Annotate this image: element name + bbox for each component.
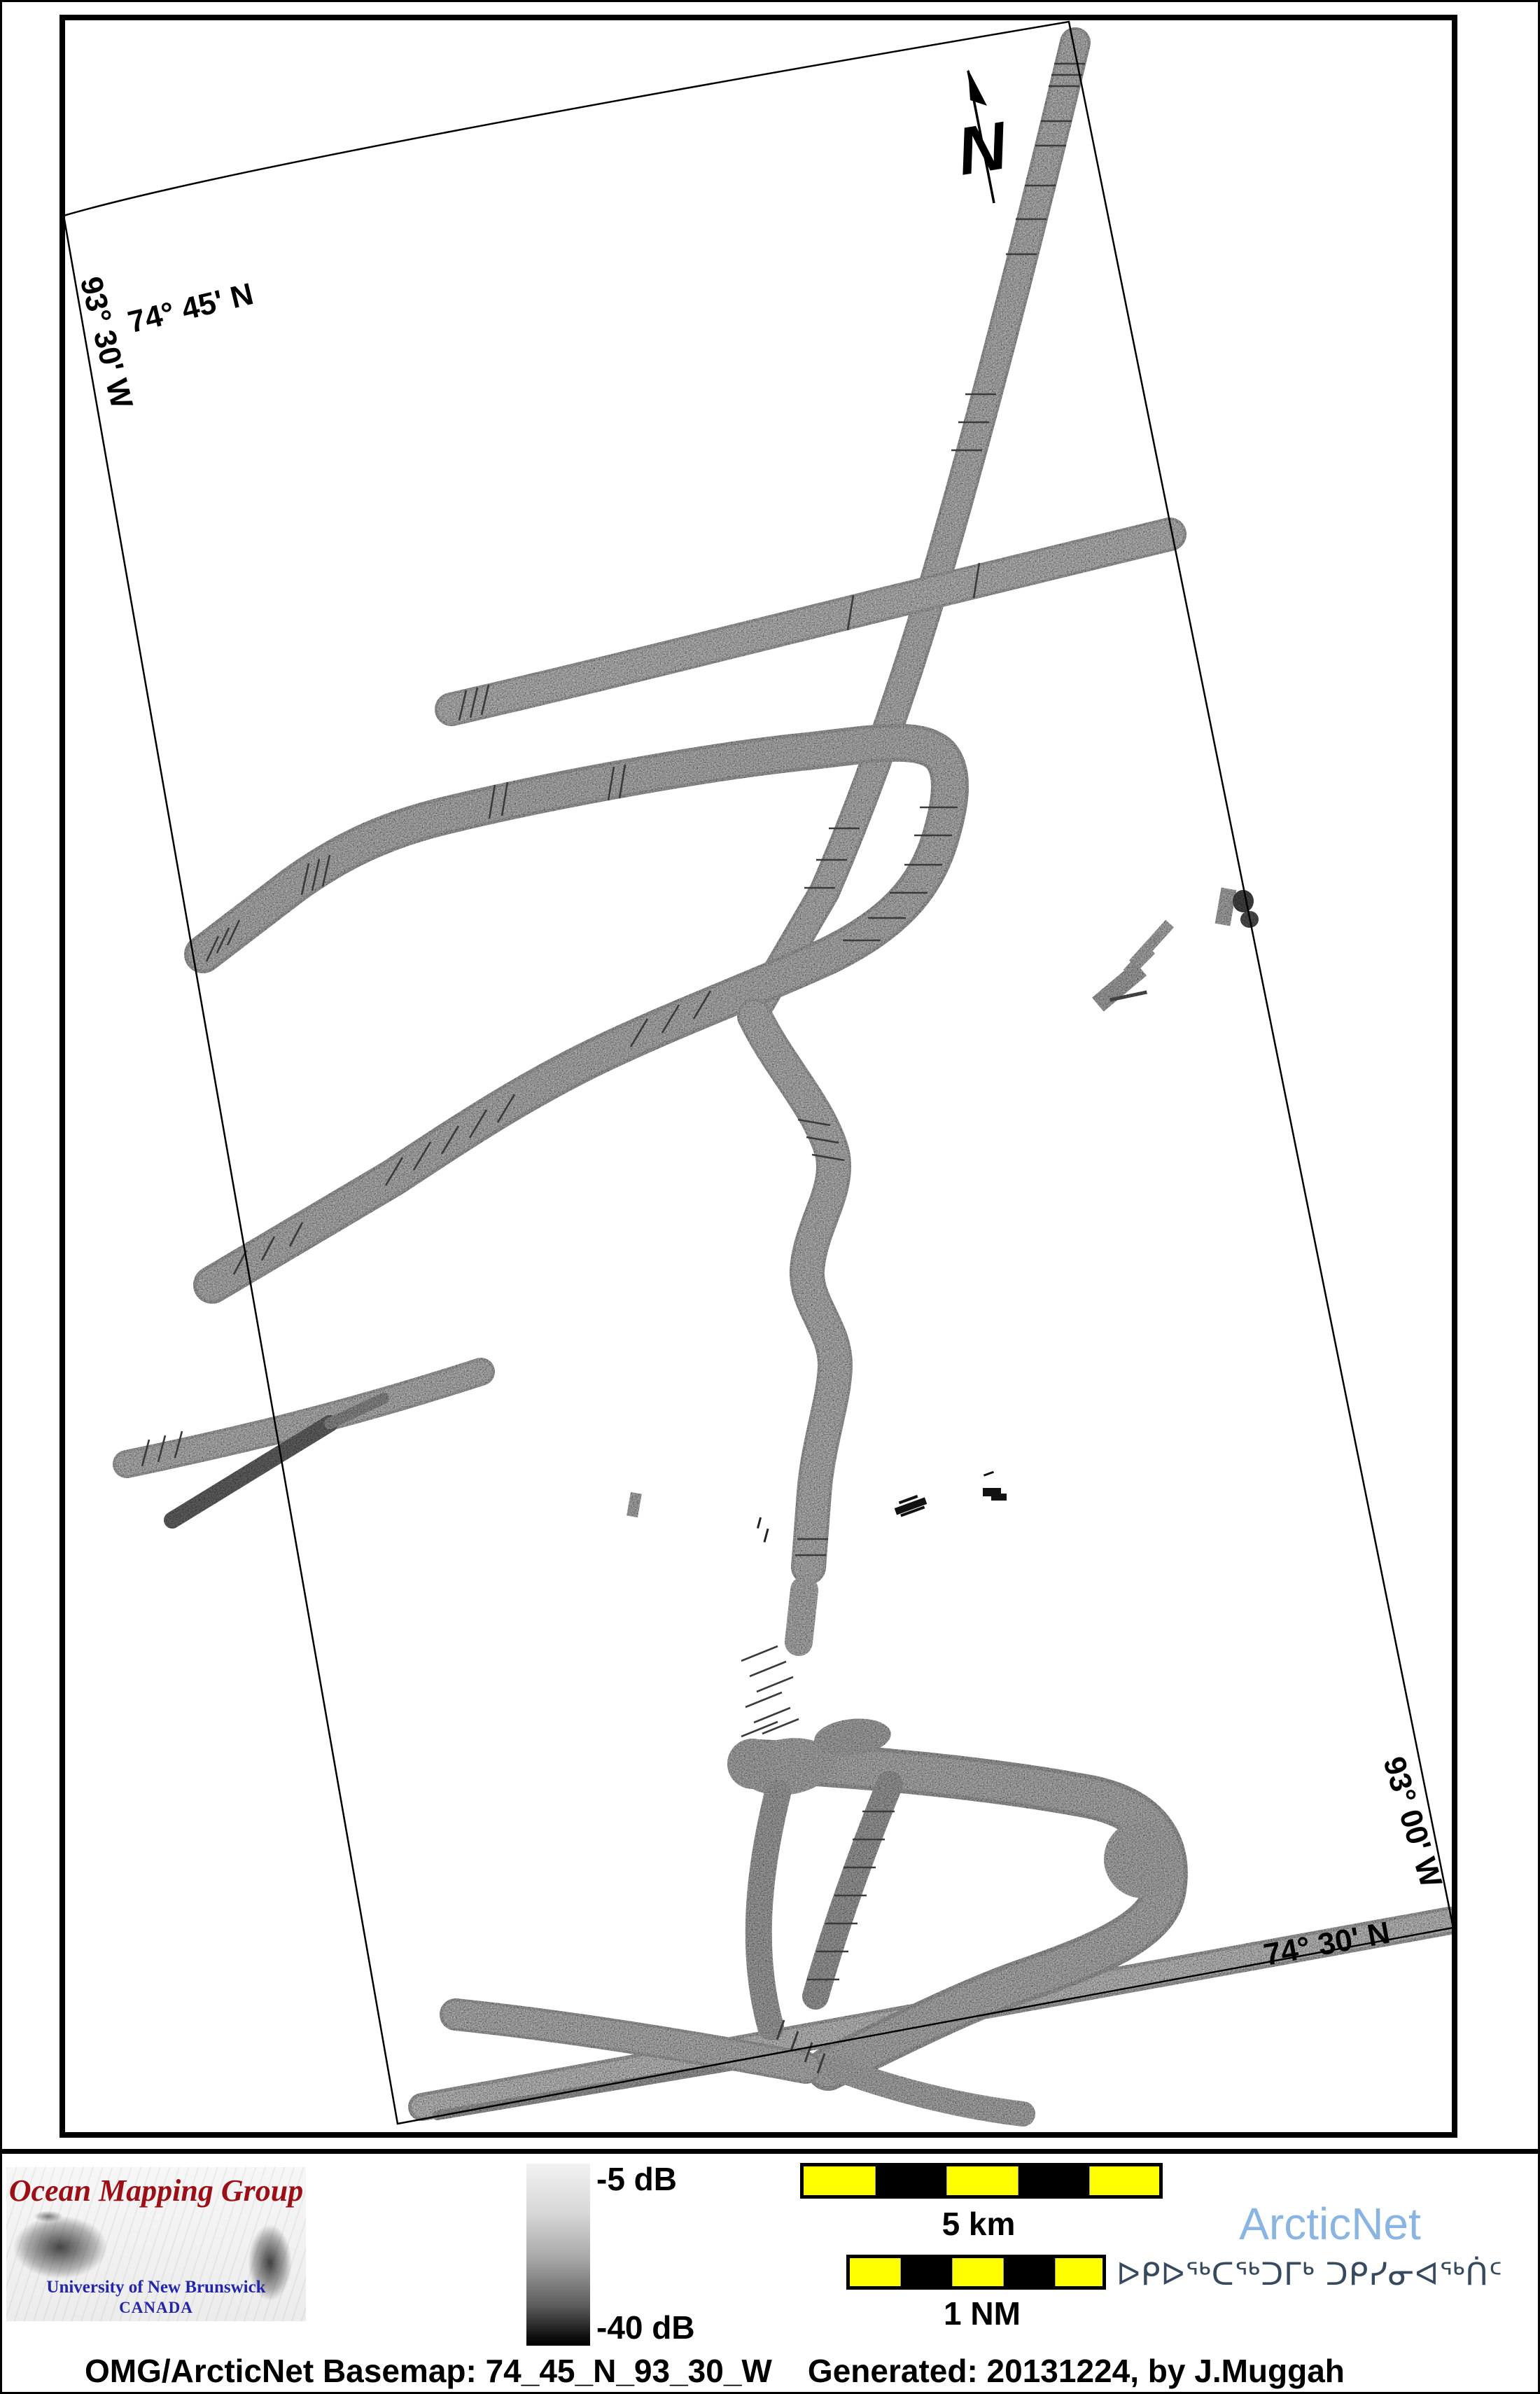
graticule-boundary — [64, 22, 1453, 2124]
sonar-swath-tracks — [127, 43, 1450, 2115]
north-arrow-icon: N — [952, 69, 1013, 203]
scale-bar-5km — [800, 2163, 1163, 2199]
swath-loop-left-limb — [815, 1784, 890, 1996]
arcticnet-inuktitut-name: ᐅᑭᐅᖅᑕᖅᑐᒥᒃ ᑐᑭᓯᓂᐊᖅᑏᑦ — [1116, 2257, 1445, 2292]
scale-bar-1nm-label: 1 NM — [898, 2295, 1066, 2332]
legend-separator — [2, 2149, 1540, 2154]
colorbar-min-label: -40 dB — [596, 2309, 695, 2346]
scale-bar-5km-label: 5 km — [895, 2205, 1063, 2243]
basemap-page: N 74° 45' N 93° 30' W 93° 00' W 74° 30' … — [0, 0, 1540, 2394]
label-longitude-right: 93° 00' W — [1376, 1753, 1448, 1891]
omg-logo-country: CANADA — [6, 2299, 306, 2317]
label-latitude-bottom: 74° 30' N — [1261, 1915, 1392, 1972]
scale-segment — [900, 2258, 952, 2286]
scale-segment — [1018, 2166, 1089, 2195]
scale-segment — [875, 2166, 946, 2195]
label-longitude-left: 93° 30' W — [73, 273, 139, 412]
scale-segment — [1055, 2258, 1102, 2286]
backscatter-colorbar — [526, 2164, 590, 2346]
scale-segment — [804, 2166, 875, 2195]
scale-segment — [850, 2258, 900, 2286]
colorbar-max-label: -5 dB — [596, 2160, 677, 2198]
omg-logo: Ocean Mapping Group University of New Br… — [6, 2167, 306, 2321]
omg-logo-institution: University of New Brunswick — [6, 2278, 306, 2297]
omg-logo-title: Ocean Mapping Group — [6, 2173, 306, 2208]
scale-segment — [1003, 2258, 1055, 2286]
scale-segment — [946, 2166, 1018, 2195]
map-canvas: N 74° 45' N 93° 30' W 93° 00' W 74° 30' … — [2, 2, 1540, 2394]
north-arrow-label: N — [952, 108, 1013, 190]
arcticnet-wordmark: ArcticNet — [1221, 2198, 1438, 2250]
scale-segment — [952, 2258, 1003, 2286]
label-latitude-top: 74° 45' N — [125, 277, 257, 340]
scale-bar-1nm — [846, 2255, 1106, 2290]
map-frame — [62, 18, 1455, 2135]
basemap-footer-text: OMG/ArcticNet Basemap: 74_45_N_93_30_W G… — [85, 2352, 1345, 2390]
scale-segment — [1089, 2166, 1159, 2195]
